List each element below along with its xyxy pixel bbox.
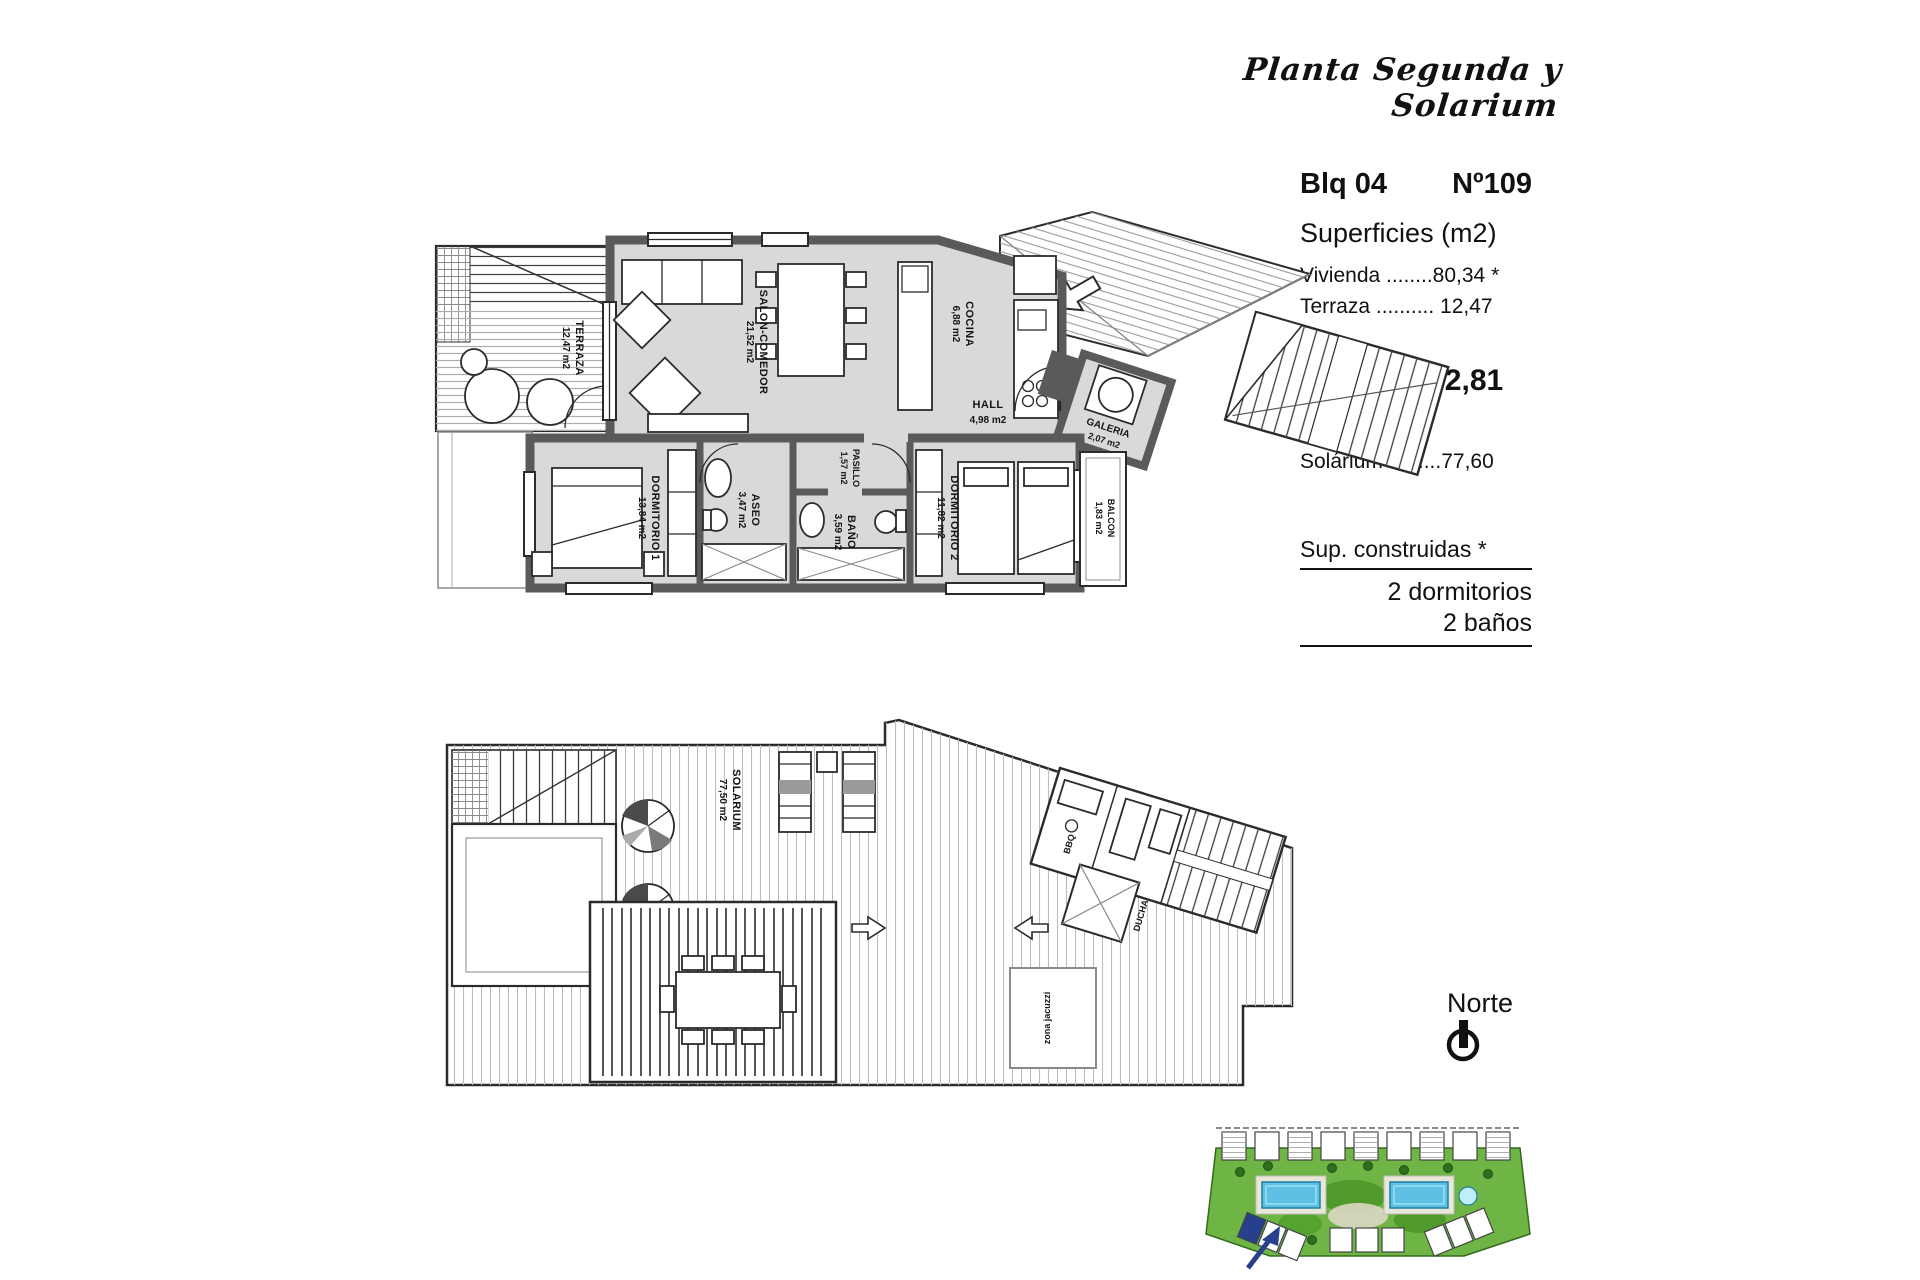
room-area: 4,98 m2 xyxy=(970,415,1007,426)
room-area: 77,50 m2 xyxy=(717,779,728,822)
dining-table-icon xyxy=(756,264,866,376)
room-label: SOLARIUM xyxy=(730,769,742,831)
sink-icon xyxy=(800,503,824,537)
room-label: TERRAZA xyxy=(573,320,585,375)
sideboard-icon xyxy=(648,414,748,432)
room-label: HALL xyxy=(973,399,1004,411)
room-area: 6,88 m2 xyxy=(950,306,961,343)
pool xyxy=(1256,1176,1326,1214)
sun-lounger-icon xyxy=(779,752,811,832)
site-buildings-bottom-center xyxy=(1330,1228,1404,1252)
north-indicator: Norte xyxy=(1447,988,1513,1059)
room-dormitorio-2: DORMITORIO 2 11,82 m2 xyxy=(916,450,1074,576)
bed-icon xyxy=(552,468,642,568)
lower-floor-plan: SOLARIUM 77,50 m2 xyxy=(447,720,1292,1085)
jacuzzi-area: zona jacuzzi xyxy=(1010,968,1096,1068)
room-label: COCINA xyxy=(963,301,975,347)
site-plan xyxy=(1206,1128,1530,1268)
room-balcon: BALCON 1,83 m2 xyxy=(1080,452,1126,586)
spa-pool xyxy=(1459,1187,1477,1205)
room-label: SALON-COMEDOR xyxy=(757,290,769,395)
room-label: DORMITORIO 2 xyxy=(948,475,960,560)
terrace-table-icon xyxy=(461,349,487,375)
room-label: ASEO xyxy=(749,494,761,527)
room-area: 11,82 m2 xyxy=(935,497,946,539)
north-label: Norte xyxy=(1447,988,1513,1018)
room-area: 13,84 m2 xyxy=(636,497,647,540)
communal-staircase xyxy=(1225,312,1448,475)
room-terraza: TERRAZA 12,47 m2 xyxy=(436,246,608,431)
room-label: PASILLO xyxy=(851,449,861,487)
room-label: BALCON xyxy=(1106,499,1116,538)
room-area: 3,47 m2 xyxy=(736,492,747,529)
room-label: zona jacuzzi xyxy=(1042,992,1052,1045)
room-label: DORMITORIO 1 xyxy=(649,475,661,560)
wardrobe-icon xyxy=(668,450,696,576)
bedroom-band: DORMITORIO 1 13,84 m2 ASEO 3,47 m2 PASIL… xyxy=(524,431,1086,594)
pergola xyxy=(590,902,836,1082)
side-table-icon xyxy=(817,752,837,772)
room-area: 12,47 m2 xyxy=(560,327,571,370)
toilet-icon xyxy=(875,511,897,533)
room-salon-cocina-hall: SALON-COMEDOR 21,52 m2 COCINA 6,88 m2 HA… xyxy=(603,233,1062,438)
tree-icon xyxy=(622,800,674,852)
room-area: 1,83 m2 xyxy=(1094,501,1104,534)
floorplan-canvas: TERRAZA 12,47 m2 xyxy=(0,0,1920,1280)
solarium-stairs xyxy=(452,750,616,824)
sun-lounger-icon xyxy=(843,752,875,832)
upper-floor-plan: TERRAZA 12,47 m2 xyxy=(436,212,1448,594)
room-label: BAÑO xyxy=(845,515,858,549)
sink-icon xyxy=(705,459,731,497)
pool xyxy=(1384,1176,1454,1214)
room-area: 3,59 m2 xyxy=(832,514,843,551)
terrace-chair-icon xyxy=(465,369,519,423)
room-dormitorio-1: DORMITORIO 1 13,84 m2 xyxy=(532,450,696,576)
room-area: 1,57 m2 xyxy=(839,451,849,484)
room-area: 21,52 m2 xyxy=(744,321,755,364)
north-compass-icon xyxy=(1449,1020,1477,1059)
outdoor-table-icon xyxy=(676,972,780,1028)
